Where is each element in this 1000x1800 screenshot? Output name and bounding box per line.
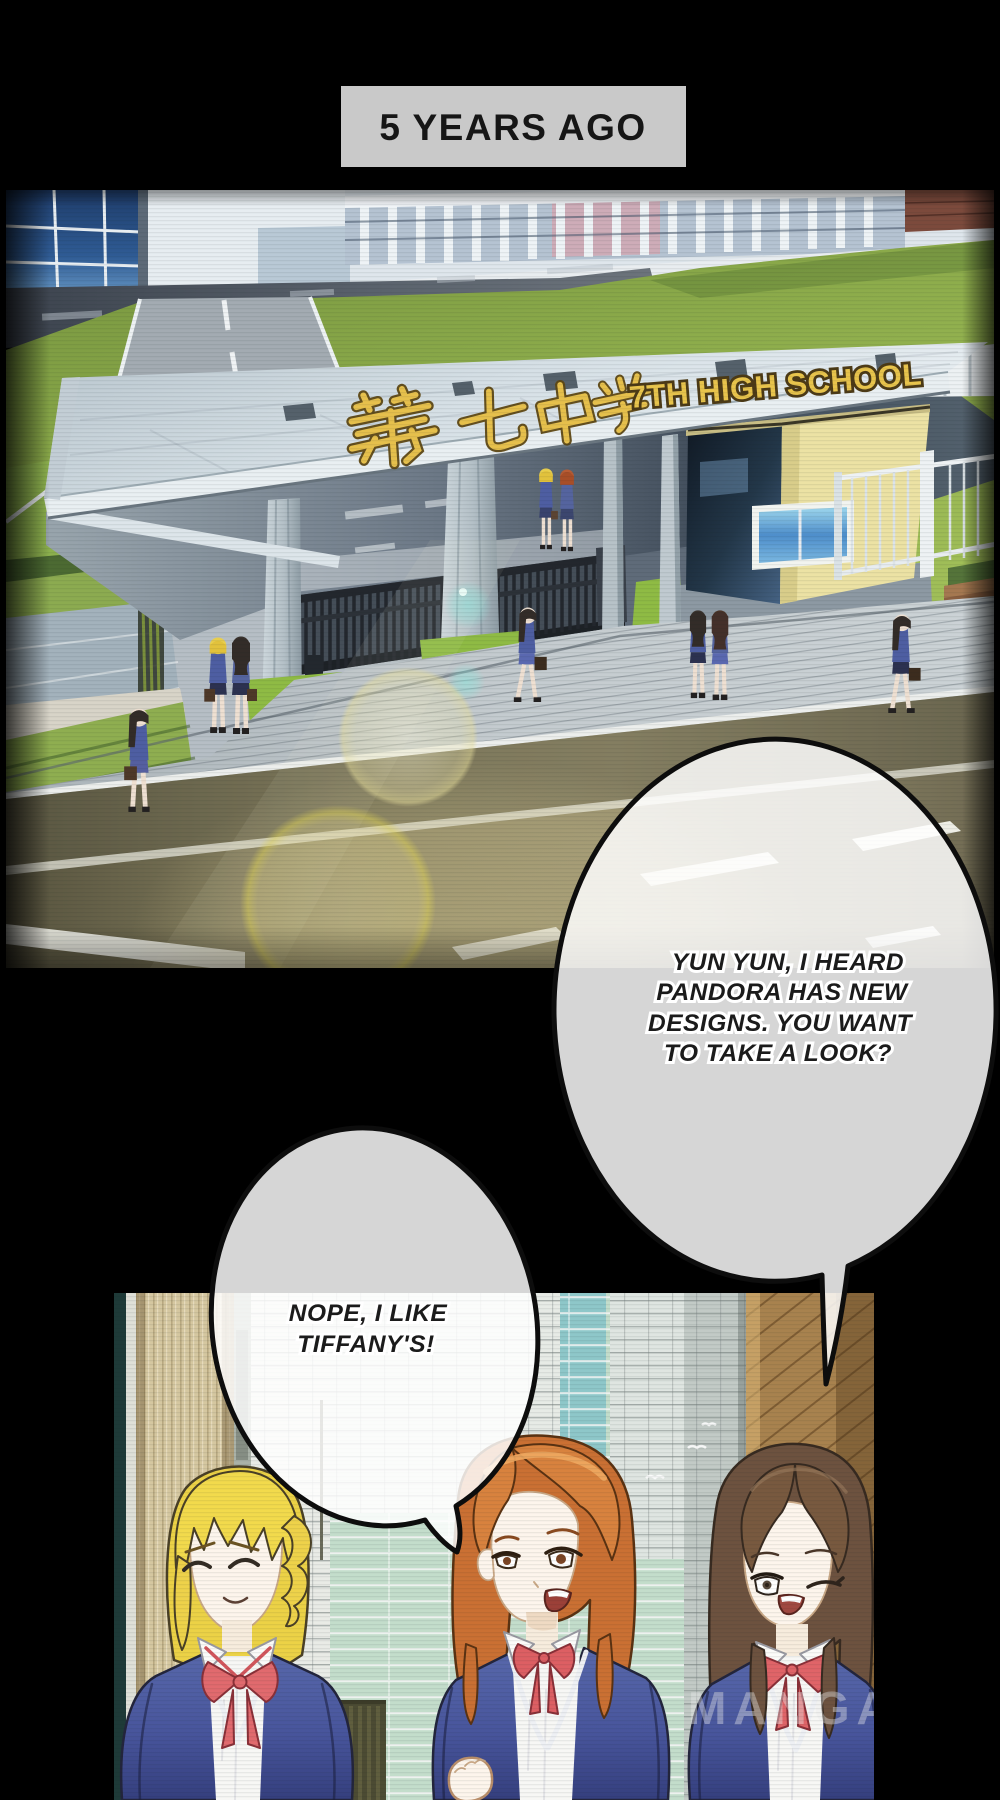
- svg-text:YUN YUN, I HEARD: YUN YUN, I HEARD: [672, 949, 904, 976]
- svg-text:DESIGNS. YOU WANT: DESIGNS. YOU WANT: [648, 1010, 914, 1037]
- svg-text:TO TAKE A LOOK?: TO TAKE A LOOK?: [664, 1040, 892, 1067]
- svg-text:TIFFANY'S!: TIFFANY'S!: [297, 1331, 434, 1358]
- svg-text:NOPE, I LIKE: NOPE, I LIKE: [289, 1300, 448, 1327]
- svg-text:5 YEARS AGO: 5 YEARS AGO: [379, 107, 646, 148]
- svg-text:PANDORA HAS NEW: PANDORA HAS NEW: [656, 979, 909, 1006]
